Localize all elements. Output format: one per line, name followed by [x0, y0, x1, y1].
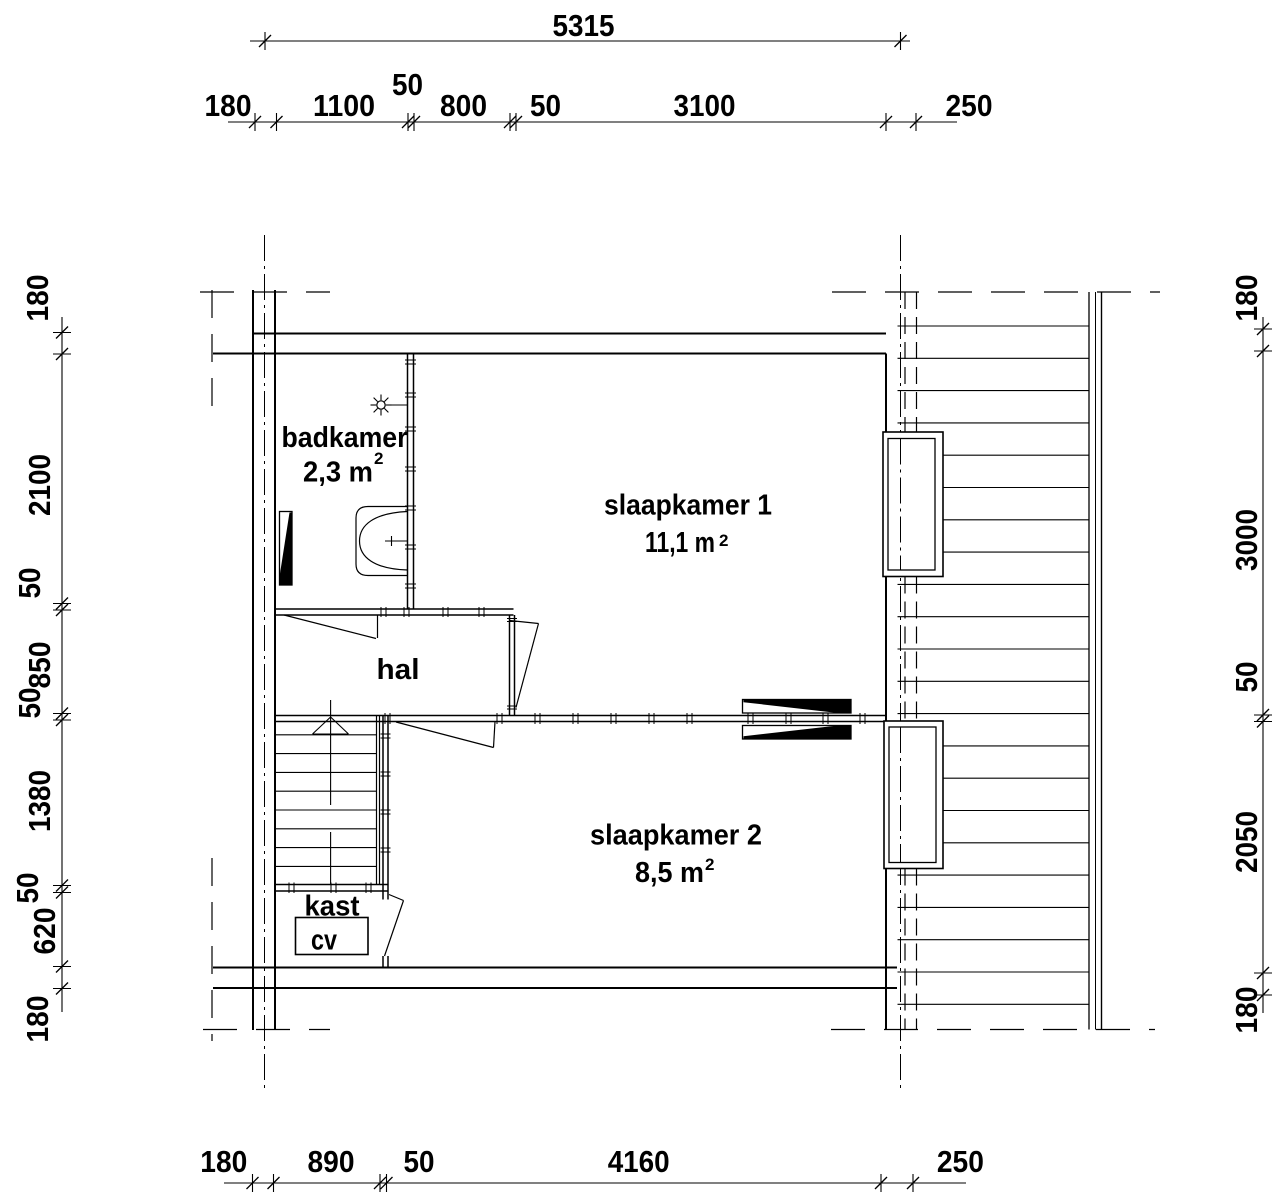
- svg-text:3100: 3100: [674, 88, 736, 123]
- svg-text:2,3 m: 2,3 m: [303, 457, 373, 489]
- svg-text:11,1 m: 11,1 m: [645, 527, 715, 559]
- svg-text:180: 180: [20, 275, 55, 322]
- svg-text:hal: hal: [377, 654, 420, 686]
- svg-text:250: 250: [946, 88, 993, 123]
- svg-text:620: 620: [27, 908, 62, 955]
- svg-text:slaapkamer 1: slaapkamer 1: [604, 490, 772, 522]
- svg-text:180: 180: [200, 1144, 247, 1179]
- svg-text:3000: 3000: [1229, 509, 1264, 571]
- svg-text:2100: 2100: [22, 454, 57, 516]
- svg-text:180: 180: [20, 996, 55, 1043]
- svg-text:5315: 5315: [553, 8, 615, 43]
- svg-text:2050: 2050: [1229, 811, 1264, 873]
- svg-text:800: 800: [440, 88, 487, 123]
- svg-text:50: 50: [530, 88, 561, 123]
- svg-text:badkamer: badkamer: [282, 422, 408, 454]
- svg-text:180: 180: [1229, 275, 1264, 322]
- svg-text:180: 180: [1229, 987, 1264, 1034]
- svg-text:1100: 1100: [313, 88, 375, 123]
- svg-text:1380: 1380: [22, 770, 57, 832]
- svg-text:50: 50: [392, 67, 423, 102]
- svg-text:180: 180: [205, 88, 252, 123]
- svg-text:8,5 m: 8,5 m: [635, 857, 704, 889]
- svg-text:250: 250: [937, 1144, 984, 1179]
- svg-text:4160: 4160: [608, 1144, 670, 1179]
- svg-text:850: 850: [22, 642, 57, 689]
- svg-text:50: 50: [404, 1144, 435, 1179]
- svg-text:50: 50: [12, 568, 47, 599]
- svg-text:890: 890: [308, 1144, 355, 1179]
- svg-text:50: 50: [1229, 662, 1264, 693]
- svg-text:2: 2: [719, 531, 728, 550]
- svg-text:50: 50: [12, 688, 47, 719]
- svg-text:slaapkamer 2: slaapkamer 2: [590, 820, 762, 852]
- svg-text:50: 50: [10, 873, 45, 904]
- svg-text:2: 2: [374, 449, 383, 468]
- svg-text:2: 2: [705, 855, 714, 874]
- svg-text:cv: cv: [311, 925, 337, 957]
